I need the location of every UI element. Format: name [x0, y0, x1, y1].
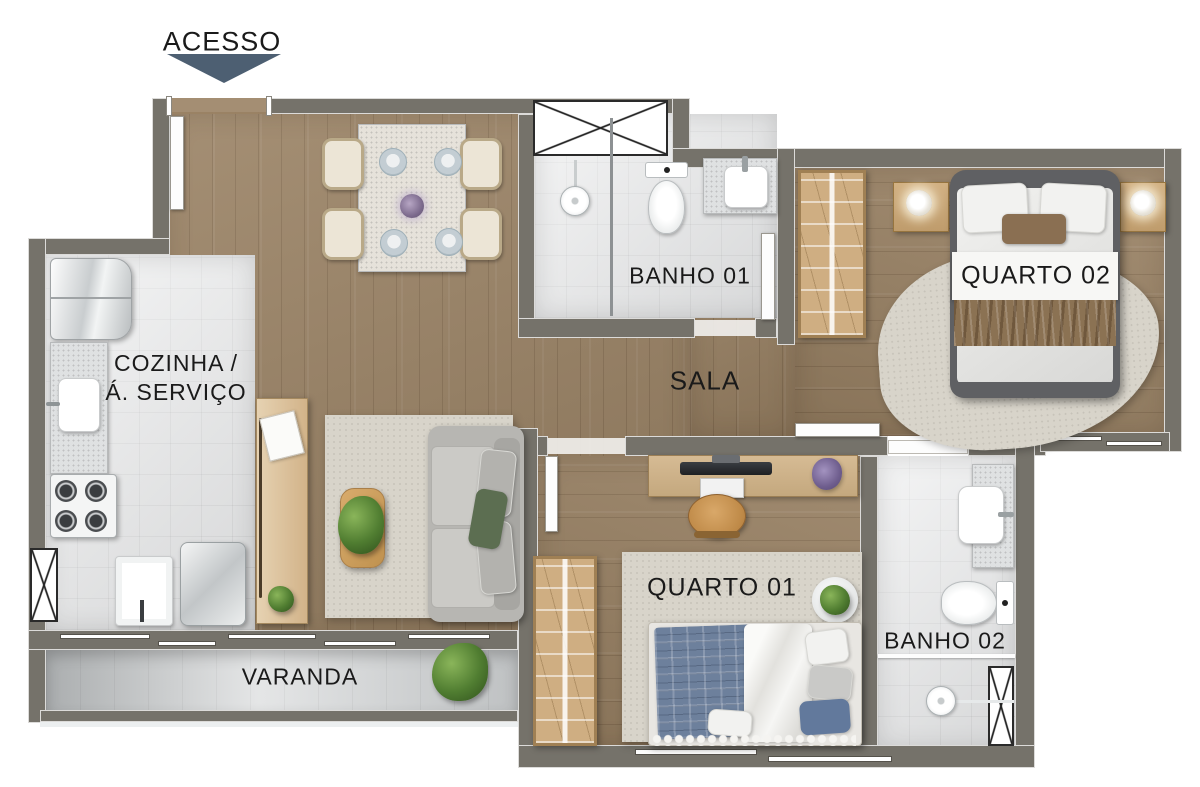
bedroom1-sliding-window-2 [768, 756, 892, 762]
stove-burner-2 [85, 480, 107, 502]
bedroom2-wardrobe [798, 170, 866, 338]
bathroom2-toilet-bowl [941, 581, 997, 625]
washing-machine [180, 542, 246, 626]
bathroom1-window [533, 100, 668, 156]
bedroom2-sliding-window-2 [1106, 441, 1162, 446]
bathroom2-toilet-button [1002, 600, 1008, 606]
kitchen-window-balcony-2 [158, 641, 216, 646]
bedroom1-pillow-white [804, 627, 850, 667]
bedroom1-pompom-edge [652, 734, 856, 746]
plate-2 [434, 148, 462, 176]
coffee-table-plant [338, 496, 384, 554]
wall-right [1164, 148, 1182, 452]
bedroom1-sliding-window [635, 749, 757, 755]
room-label-living: SALA [670, 367, 741, 396]
laundry-tank [115, 556, 173, 626]
bedroom2-throw [954, 300, 1116, 346]
plate-3 [380, 229, 408, 257]
wall-bathroom1-bottom-a [518, 318, 695, 338]
stove-burner-1 [55, 480, 77, 502]
bathroom2-shower-head [926, 686, 956, 716]
entry-threshold [168, 98, 270, 114]
dining-chair-3 [460, 138, 502, 190]
bedroom2-accent-pillow [1002, 214, 1066, 244]
wall-kitchen-left [28, 238, 46, 723]
bathroom1-shower-head [560, 186, 590, 216]
plate-4 [435, 228, 463, 256]
wall-mid-a [625, 436, 888, 456]
balcony-sill [40, 722, 518, 727]
room-label-balcony: VARANDA [242, 663, 359, 692]
floor-plan: ACESSO [0, 0, 1200, 787]
bathroom1-door [761, 233, 775, 320]
plate-1 [379, 148, 407, 176]
room-label-bedroom1: QUARTO 01 [647, 574, 797, 603]
table-vase [400, 194, 424, 218]
bathroom1-door-threshold [695, 320, 755, 336]
sideboard-plant [268, 586, 294, 612]
bedroom2-lamp-right [1130, 190, 1156, 216]
bedroom1-plant [820, 585, 850, 615]
wall-kitchen-top [28, 238, 170, 255]
kitchen-window [30, 548, 58, 622]
bathroom2-faucet [998, 512, 1014, 517]
stove-burner-3 [55, 510, 77, 532]
bathroom2-window [988, 666, 1014, 746]
fridge [50, 258, 132, 340]
bathroom2-shower-arm [952, 700, 1014, 703]
access-arrow-icon [167, 54, 281, 83]
bathroom1-shower-divider [610, 118, 613, 316]
access-label: ACESSO [163, 28, 282, 57]
wall-entry-left [152, 98, 170, 248]
entry-jamb-left [166, 96, 172, 116]
room-label-kitchen: COZINHA / Á. SERVIÇO [105, 349, 246, 407]
wall-bedroom2-left [777, 148, 795, 345]
bedroom1-door-threshold [548, 438, 625, 454]
fridge-seam [50, 297, 132, 299]
balcony-door-pane [228, 634, 316, 639]
living-sliding-door-2 [408, 634, 490, 639]
bedroom1-wardrobe [533, 556, 597, 746]
desk-tv-stand [712, 455, 740, 463]
entry-jamb-right [266, 96, 272, 116]
bedroom1-pillow-gray [806, 664, 853, 702]
wall-bathroom2-left [860, 456, 878, 768]
dining-chair-1 [322, 138, 364, 190]
sideboard-edge [259, 418, 262, 598]
bedroom2-footboard [950, 382, 1120, 398]
dining-chair-4 [460, 208, 502, 260]
bathroom1-faucet [742, 156, 748, 172]
room-label-bathroom2: BANHO 02 [884, 627, 1006, 656]
wall-bathroom2-right [1015, 436, 1035, 768]
bedroom1-door [545, 456, 558, 532]
room-label-bathroom1: BANHO 01 [629, 262, 751, 291]
wall-bathroom1-bottom-b [755, 318, 777, 338]
entry-door [170, 116, 184, 210]
bedroom2-door [795, 423, 880, 437]
kitchen-label-line2: Á. SERVIÇO [105, 378, 246, 407]
kitchen-faucet [46, 402, 60, 406]
desk-tv [680, 462, 772, 475]
room-label-bedroom2: QUARTO 02 [961, 262, 1111, 291]
laundry-faucet [140, 600, 144, 622]
bedroom1-pillow-blue [799, 698, 851, 735]
bathroom1-toilet-bowl [648, 180, 685, 234]
living-sliding-door [324, 641, 396, 646]
dining-chair-2 [322, 208, 364, 260]
desk-chair-back [694, 531, 740, 538]
wall-balcony-band [28, 630, 518, 650]
bedroom2-lamp-left [906, 190, 932, 216]
kitchen-label-line1: COZINHA / [105, 349, 246, 378]
bathroom1-sink [724, 166, 768, 208]
stove-burner-4 [85, 510, 107, 532]
kitchen-sink [58, 378, 100, 432]
balcony-rail [40, 710, 518, 722]
balcony-plant [432, 643, 488, 701]
kitchen-window-balcony [60, 634, 150, 639]
bathroom1-toilet-button [664, 167, 670, 173]
